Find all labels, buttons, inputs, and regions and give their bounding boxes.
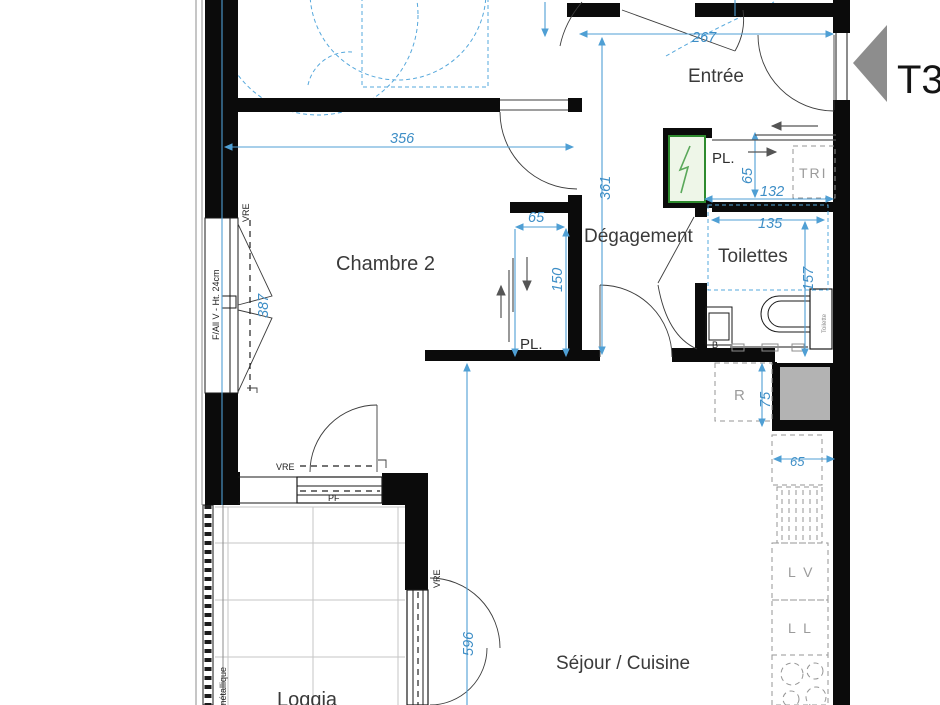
dim-267: 267 — [691, 30, 717, 46]
pf-label: PF — [328, 493, 340, 503]
tri-label: TRI — [799, 165, 828, 181]
dim-150: 150 — [550, 268, 566, 292]
dim-65-kitchen: 65 — [790, 454, 805, 469]
dim-361: 361 — [598, 176, 614, 200]
closet-label-entree: PL. — [712, 150, 735, 167]
room-label-sejour: Séjour / Cuisine — [556, 653, 690, 674]
dim-596: 596 — [461, 631, 477, 656]
dim-132: 132 — [760, 184, 784, 200]
dim-75: 75 — [758, 391, 774, 408]
vre-label-loggia: VRE — [432, 569, 442, 588]
dim-356: 356 — [390, 131, 415, 147]
floor-plan: T3 Entrée Chambre 2 Dégagement Toilettes… — [0, 0, 940, 705]
dim-157: 157 — [801, 266, 817, 291]
room-label-loggia: Loggia — [277, 689, 338, 705]
vre-label-window: VRE — [241, 203, 251, 222]
window-loggia — [407, 590, 428, 705]
dim-387: 387 — [256, 293, 272, 318]
room-label-degagement: Dégagement — [584, 226, 694, 247]
room-label-toilettes: Toilettes — [718, 246, 788, 267]
apartment-type-label: T3 — [897, 58, 940, 102]
electrical-panel — [669, 136, 705, 202]
room-label-chambre2: Chambre 2 — [336, 253, 435, 275]
closet-label-chambre: PL. — [520, 336, 543, 353]
dishwasher-label: L V — [788, 564, 815, 580]
cistern-label: Toilette — [822, 313, 828, 333]
dim-65-entree: 65 — [740, 167, 756, 184]
washing-machine-label: L L — [788, 620, 813, 636]
window-spec-label: F/All V - Ht. 24cm — [211, 269, 221, 340]
vre-label-pf: VRE — [276, 462, 295, 472]
dim-135: 135 — [758, 216, 783, 232]
cistern — [810, 289, 832, 349]
railing-label: métallique — [218, 667, 228, 705]
dim-65-chambre: 65 — [528, 210, 545, 226]
fridge-label: R — [734, 387, 745, 404]
technical-duct — [778, 365, 832, 422]
basin-label: B — [712, 340, 718, 350]
room-label-entree: Entrée — [688, 66, 744, 87]
